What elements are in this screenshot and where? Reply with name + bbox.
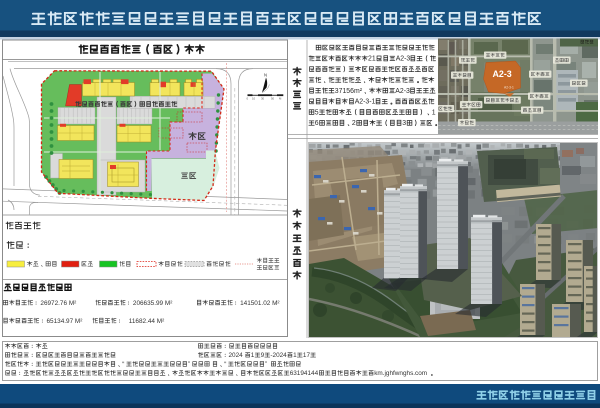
svg-text:37156m²: 37156m² (335, 88, 363, 95)
svg-text:3: 3 (402, 120, 406, 127)
svg-text:1: 1 (251, 352, 255, 359)
svg-text:63194144: 63194144 (290, 370, 319, 377)
svg-text:6: 6 (315, 120, 319, 127)
svg-text:”: ” (265, 361, 267, 368)
svg-text:206635.99 M²: 206635.99 M² (133, 300, 172, 307)
svg-text:30: 30 (261, 97, 265, 101)
svg-text:9: 9 (261, 352, 265, 359)
svg-text:A2-3: A2-3 (493, 69, 512, 79)
svg-text:”: ” (188, 361, 190, 368)
svg-text:-2024: -2024 (270, 352, 287, 359)
svg-text:A2-3: A2-3 (395, 88, 410, 95)
svg-text:2024: 2024 (229, 352, 244, 359)
svg-text:141501.02 M²: 141501.02 M² (240, 300, 279, 307)
svg-text:1: 1 (293, 352, 297, 359)
svg-text:“: “ (122, 361, 124, 368)
svg-text:5: 5 (315, 109, 319, 116)
svg-text:65134.97 M²: 65134.97 M² (47, 318, 83, 325)
svg-text:A2-3-1: A2-3-1 (504, 85, 514, 89)
svg-text:17: 17 (303, 352, 311, 359)
svg-text:10: 10 (252, 97, 256, 101)
svg-text:N: N (264, 73, 267, 78)
svg-text:11682.44 M²: 11682.44 M² (129, 318, 164, 325)
svg-text:A2-3: A2-3 (396, 56, 411, 63)
svg-text:1: 1 (432, 109, 436, 116)
svg-text:26972.76 M²: 26972.76 M² (40, 300, 76, 307)
svg-text:km.jghfwnghs.com: km.jghfwnghs.com (374, 370, 427, 377)
svg-text:2: 2 (352, 120, 356, 127)
svg-text:50: 50 (271, 97, 275, 101)
svg-text:“: “ (224, 361, 226, 368)
svg-text:21: 21 (368, 56, 376, 63)
svg-text:A2-3-1: A2-3-1 (355, 99, 376, 106)
